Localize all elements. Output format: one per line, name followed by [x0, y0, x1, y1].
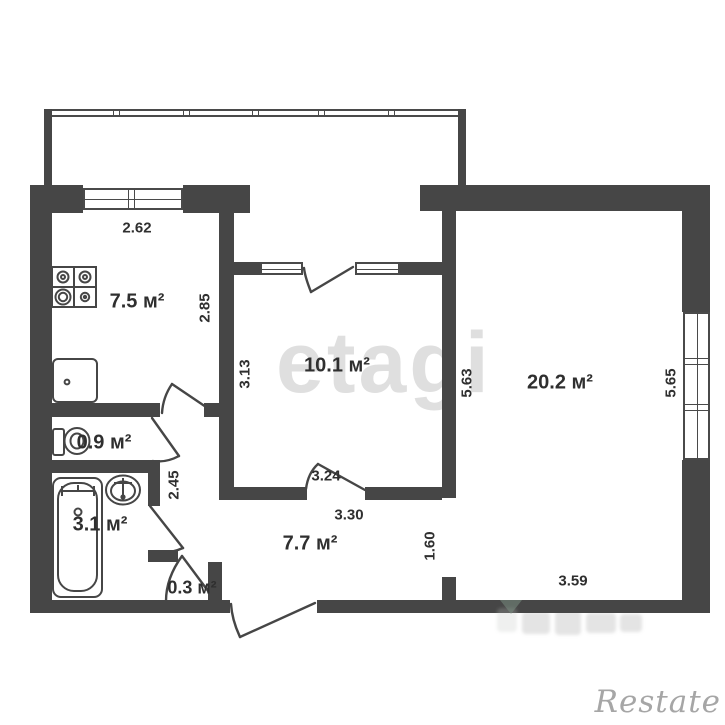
door-arc [152, 548, 183, 553]
door-arc [153, 456, 179, 461]
door-leaf [172, 384, 209, 409]
door-arc [231, 604, 240, 637]
door-leaf [311, 267, 353, 292]
dimension-label: 2.45 [166, 470, 183, 499]
dimension-label: 3.59 [558, 573, 587, 590]
room-area-hallway: 7.7 м² [283, 533, 338, 556]
washbasin-icon [106, 476, 140, 505]
bathtub-icon [53, 478, 102, 597]
dimension-label: 3.13 [237, 359, 254, 388]
door-arc [162, 384, 172, 413]
floor-plan: etagi [0, 0, 725, 725]
dimension-label: 5.65 [663, 368, 680, 397]
kitchen-door [162, 384, 209, 413]
room-area-wc: 0.9 м² [77, 432, 132, 455]
room-area-closet: 0.3 м² [167, 578, 216, 599]
balcony-door [304, 267, 353, 292]
room-area-bedroom: 10.1 м² [304, 355, 370, 378]
wc-door [152, 418, 179, 461]
stove-icon [52, 267, 96, 307]
dimension-label: 2.62 [122, 220, 151, 237]
door-leaf [152, 418, 179, 456]
restate-watermark: Restate [595, 684, 721, 720]
dimension-label: 3.24 [311, 468, 340, 485]
entry-door [231, 603, 315, 637]
door-arc [304, 268, 311, 292]
room-area-kitchen: 7.5 м² [110, 291, 165, 314]
dimension-label: 2.85 [197, 293, 214, 322]
bathroom-door [150, 506, 183, 553]
dimension-label: 3.30 [334, 507, 363, 524]
room-area-living: 20.2 м² [527, 372, 593, 395]
kitchen-sink-icon [53, 359, 97, 402]
dimension-label: 5.63 [459, 368, 476, 397]
room-area-bathroom: 3.1 м² [73, 514, 128, 537]
door-leaf [240, 603, 315, 637]
door-leaf [150, 506, 183, 548]
dimension-label: 1.60 [422, 531, 439, 560]
